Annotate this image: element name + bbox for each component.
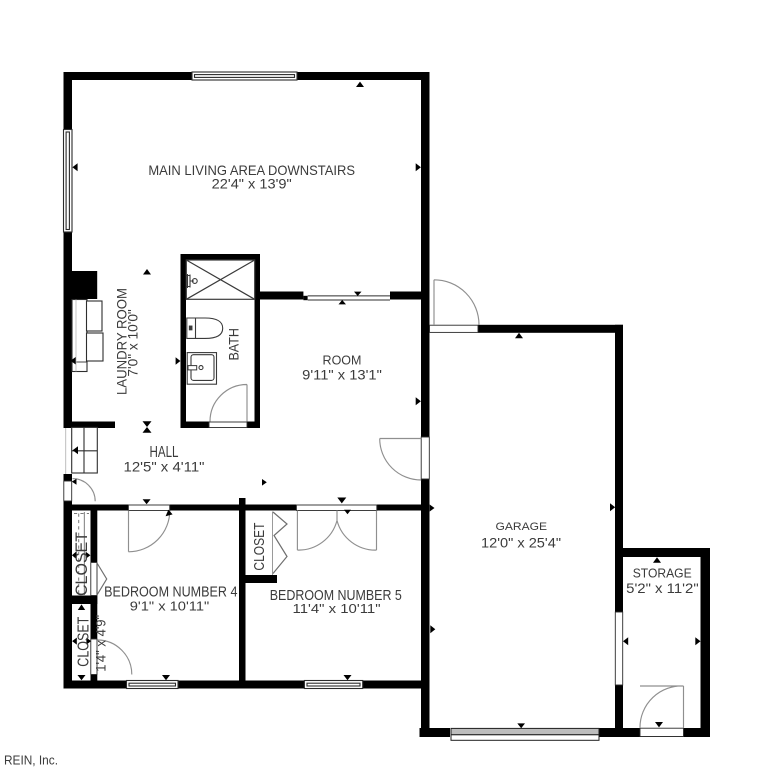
svg-text:1'4" x 4'9": 1'4" x 4'9" (93, 615, 108, 672)
svg-text:12'0" x 25'4": 12'0" x 25'4" (481, 534, 561, 550)
svg-text:BATH: BATH (226, 328, 242, 361)
svg-text:GARAGE: GARAGE (496, 521, 548, 533)
svg-text:REIN, Inc.: REIN, Inc. (4, 753, 58, 768)
svg-text:CLOSET: CLOSET (252, 523, 268, 571)
svg-text:STORAGE: STORAGE (633, 566, 692, 581)
svg-text:9'11" x 13'1": 9'11" x 13'1" (302, 367, 382, 383)
svg-text:5'2" x 11'2": 5'2" x 11'2" (626, 580, 699, 596)
svg-text:11'4" x 10'11": 11'4" x 10'11" (293, 601, 381, 616)
svg-text:22'4" x 13'9": 22'4" x 13'9" (212, 176, 292, 192)
svg-text:9'1" x 10'11": 9'1" x 10'11" (130, 599, 210, 614)
svg-text:CLOSET: CLOSET (75, 617, 92, 667)
svg-text:12'5" x 4'11": 12'5" x 4'11" (124, 458, 205, 474)
svg-text:CLOSET: CLOSET (73, 532, 91, 596)
svg-text:7'0" x 10'0": 7'0" x 10'0" (125, 309, 141, 376)
svg-text:ROOM: ROOM (323, 353, 362, 367)
